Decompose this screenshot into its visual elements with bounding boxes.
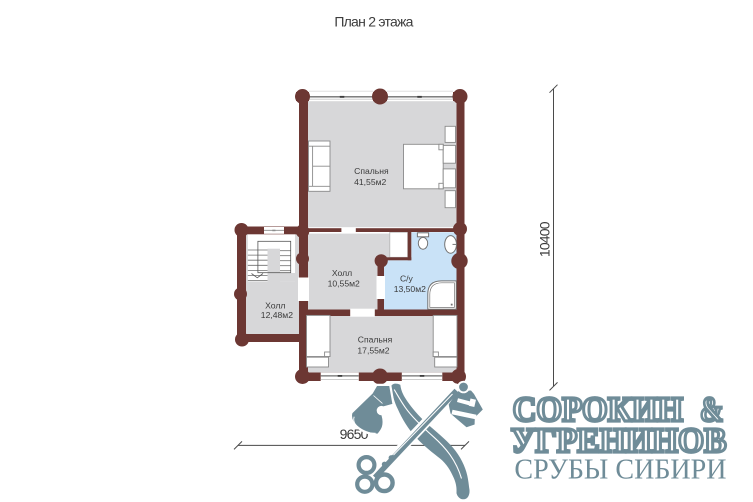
svg-text:Холл: Холл (265, 301, 285, 311)
svg-text:13,50м2: 13,50м2 (394, 284, 426, 294)
svg-text:Холл: Холл (332, 268, 352, 278)
svg-text:С/у: С/у (400, 274, 414, 284)
svg-text:СРУБЫ СИБИРИ: СРУБЫ СИБИРИ (514, 454, 726, 485)
svg-text:10400: 10400 (537, 221, 553, 257)
svg-text:План 2 этажа: План 2 этажа (334, 14, 413, 30)
svg-text:Спальня: Спальня (358, 335, 393, 345)
svg-text:41,55м2: 41,55м2 (354, 177, 386, 187)
svg-text:17,55м2: 17,55м2 (357, 345, 389, 355)
svg-text:Спальня: Спальня (354, 166, 389, 176)
svg-text:10,55м2: 10,55м2 (328, 279, 360, 289)
svg-text:12,48м2: 12,48м2 (261, 310, 293, 320)
